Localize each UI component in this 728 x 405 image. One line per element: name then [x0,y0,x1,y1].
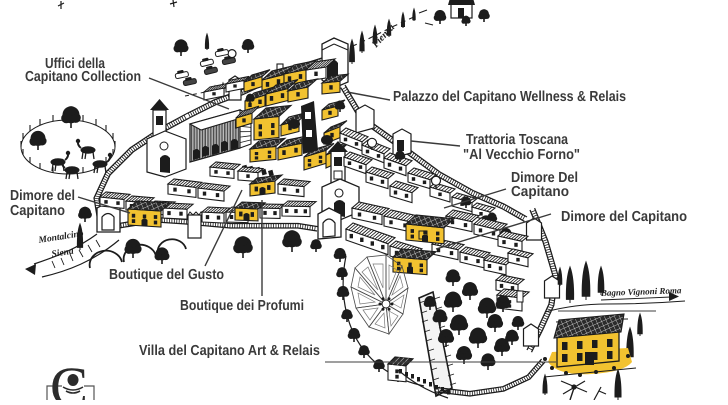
svg-text:Dimore del Capitano: Dimore del Capitano [561,209,687,225]
svg-text:Trattoria Toscana: Trattoria Toscana [466,132,569,148]
svg-text:Boutique dei Profumi: Boutique dei Profumi [180,298,304,314]
svg-text:Boutique del Gusto: Boutique del Gusto [109,267,224,283]
svg-text:Dimore del: Dimore del [10,188,75,204]
svg-text:Capitano: Capitano [511,184,569,200]
svg-text:Capitano Collection: Capitano Collection [25,69,141,85]
svg-text:"Al Vecchio Forno": "Al Vecchio Forno" [463,147,580,163]
svg-text:Villa del Capitano Art & Relai: Villa del Capitano Art & Relais [139,343,320,359]
svg-text:Palazzo del Capitano Wellness: Palazzo del Capitano Wellness & Relais [393,89,626,105]
svg-text:Capitano: Capitano [10,203,65,219]
